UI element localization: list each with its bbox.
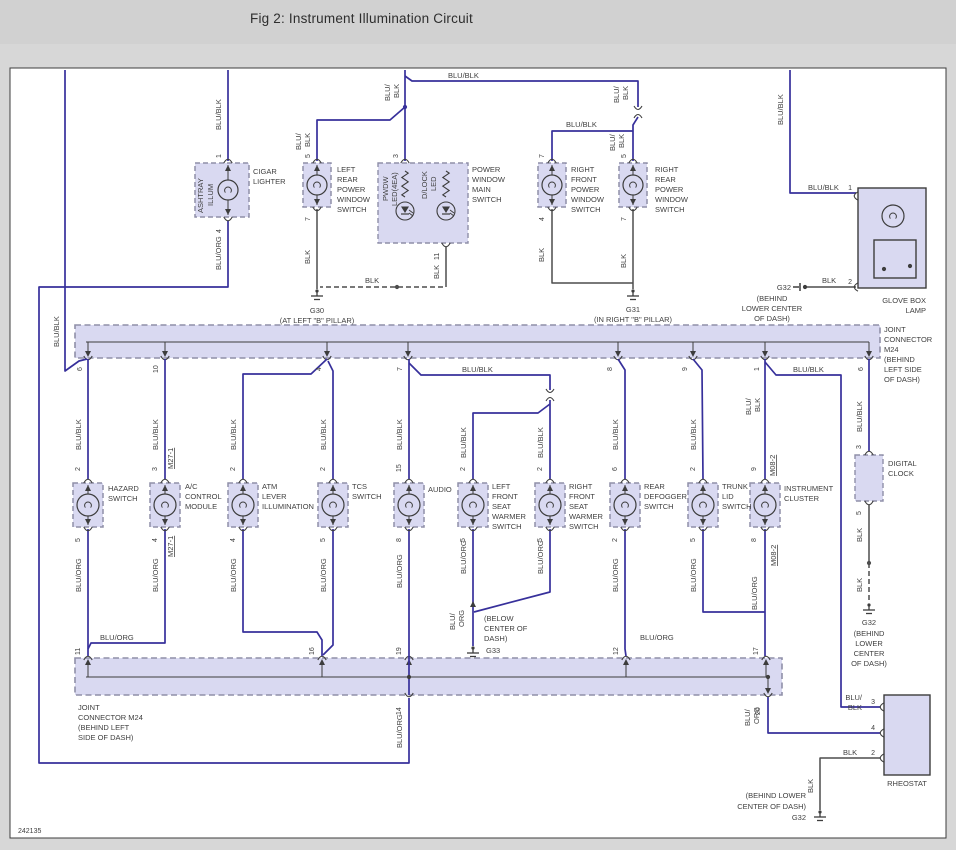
junction-dot bbox=[403, 105, 407, 109]
label: 2 bbox=[537, 467, 544, 471]
junction-dot bbox=[407, 675, 411, 679]
label: BLK bbox=[855, 578, 864, 592]
label: BLU/ORG bbox=[151, 558, 160, 592]
label: BLU/ORG bbox=[536, 540, 545, 574]
label: BLU/ bbox=[448, 612, 457, 630]
label: BLU/BLK bbox=[566, 120, 597, 129]
label: 5 bbox=[856, 511, 863, 515]
label: 1 bbox=[216, 154, 223, 158]
label: 2 bbox=[848, 279, 852, 286]
label: HAZARDSWITCH bbox=[108, 484, 139, 503]
label: 4 bbox=[539, 217, 546, 221]
label: 8 bbox=[751, 538, 758, 542]
label: BLU/BLK bbox=[793, 365, 824, 374]
label: ILLUM bbox=[206, 184, 215, 206]
label: G32 bbox=[862, 618, 876, 627]
label: 2 bbox=[75, 467, 82, 471]
junction-dot bbox=[908, 264, 912, 268]
label: BLU/ bbox=[383, 83, 392, 101]
label: 5 bbox=[305, 154, 312, 158]
label: BLK bbox=[822, 276, 836, 285]
junction-dot bbox=[867, 561, 871, 565]
label: 2 bbox=[460, 467, 467, 471]
label: BLU/ORG bbox=[611, 558, 620, 592]
wiring-diagram: BLU/BLKBLU/BLK1CIGARLIGHTERASHTRAYILLUM4… bbox=[0, 0, 956, 850]
label: 4 bbox=[230, 538, 237, 542]
label: BLU/ bbox=[612, 85, 621, 103]
digital-clock bbox=[855, 455, 883, 501]
label: 17 bbox=[753, 647, 760, 655]
label: BLK bbox=[619, 254, 628, 268]
label: (AT LEFT "B" PILLAR) bbox=[280, 316, 355, 325]
label: BLK bbox=[855, 528, 864, 542]
label: AUDIO bbox=[428, 485, 452, 494]
label: BLK bbox=[537, 248, 546, 262]
label: 5 bbox=[621, 154, 628, 158]
label: 7 bbox=[397, 367, 404, 371]
label: BLU/BLK bbox=[229, 419, 238, 450]
label: BLU/ORG bbox=[214, 236, 223, 270]
label: BLK bbox=[843, 748, 857, 757]
label: 11 bbox=[434, 253, 441, 260]
label: 3 bbox=[871, 699, 875, 706]
label: BLU/BLK bbox=[459, 427, 468, 458]
label: BLU/ bbox=[608, 133, 617, 151]
label: BLU/BLK bbox=[151, 419, 160, 450]
label: BLU/BLK bbox=[845, 693, 863, 712]
label: ORG bbox=[457, 610, 466, 627]
label: 4 bbox=[216, 229, 223, 233]
label: G32 bbox=[777, 283, 791, 292]
label: BLK bbox=[392, 84, 401, 98]
label: 8 bbox=[396, 538, 403, 542]
label: BLU/ORG bbox=[459, 540, 468, 574]
label: 8 bbox=[607, 367, 614, 371]
label: M27-1 bbox=[166, 536, 175, 557]
label: (IN RIGHT "B" PILLAR) bbox=[594, 315, 673, 324]
label: 5 bbox=[690, 538, 697, 542]
label: BLU/ORG bbox=[74, 558, 83, 592]
label: BLU/ORG bbox=[689, 558, 698, 592]
label: 15 bbox=[396, 464, 403, 472]
label: DIGITALCLOCK bbox=[888, 459, 917, 478]
label: G33 bbox=[486, 646, 500, 655]
label: BLU/BLK bbox=[855, 401, 864, 432]
label: BLU/BLK bbox=[611, 419, 620, 450]
label: BLU/ORG bbox=[229, 558, 238, 592]
label: 7 bbox=[305, 217, 312, 221]
label: BLU/BLK bbox=[319, 419, 328, 450]
label: BLK bbox=[806, 779, 815, 793]
label: BLU/BLK bbox=[536, 427, 545, 458]
label: 7 bbox=[621, 217, 628, 221]
junction-dot bbox=[803, 285, 807, 289]
label: BLU/BLK bbox=[395, 419, 404, 450]
label: 2 bbox=[612, 538, 619, 542]
label: BLU/ORG bbox=[395, 554, 404, 588]
label: BLU/ORG bbox=[319, 558, 328, 592]
label: BLK bbox=[303, 133, 312, 147]
label: PWDW bbox=[381, 176, 390, 201]
label: 3 bbox=[393, 154, 400, 158]
label: BLU/BLK bbox=[214, 99, 223, 130]
label: BLU/BLK bbox=[448, 71, 479, 80]
label: BLK bbox=[365, 276, 379, 285]
label: BLU/BLK bbox=[776, 94, 785, 125]
label: 9 bbox=[682, 367, 689, 371]
label: BLK bbox=[753, 398, 762, 412]
label: BLU/BLK bbox=[52, 316, 61, 347]
label: BLK bbox=[621, 86, 630, 100]
label: BLU/BLK bbox=[74, 419, 83, 450]
rheostat bbox=[884, 695, 930, 775]
label: 6 bbox=[858, 367, 865, 371]
glove-box-switch-inner bbox=[874, 240, 916, 278]
label: BLU/ORG bbox=[395, 714, 404, 748]
label: G31 bbox=[626, 305, 640, 314]
label: 14 bbox=[396, 707, 403, 715]
label: BLU/ORG bbox=[100, 633, 134, 642]
label: 4 bbox=[316, 367, 323, 371]
label: 7 bbox=[539, 154, 546, 158]
label: 3 bbox=[856, 445, 863, 449]
label: BLU/ORG bbox=[750, 576, 759, 610]
label: 1 bbox=[848, 185, 852, 192]
label: 12 bbox=[613, 647, 620, 655]
drawing-number: 242135 bbox=[18, 828, 41, 835]
label: 4 bbox=[871, 725, 875, 732]
label: 2 bbox=[690, 467, 697, 471]
label: BLU/ bbox=[294, 132, 303, 150]
label: 10 bbox=[153, 365, 160, 373]
label: RHEOSTAT bbox=[887, 779, 927, 788]
label: M27-1 bbox=[166, 448, 175, 469]
label: LED(4EA) bbox=[390, 172, 399, 206]
label: M08-2 bbox=[769, 545, 778, 566]
junction-dot bbox=[766, 675, 770, 679]
label: (BEHINDLOWERCENTEROF DASH) bbox=[851, 629, 887, 668]
label: BLU/ bbox=[743, 708, 752, 726]
label: ORG bbox=[752, 707, 761, 724]
junction-dot bbox=[882, 267, 886, 271]
label: G30 bbox=[310, 306, 324, 315]
junction-dot bbox=[395, 285, 399, 289]
return-defogger bbox=[625, 529, 626, 656]
label: 19 bbox=[396, 647, 403, 655]
label: 1 bbox=[754, 367, 761, 371]
label: 6 bbox=[77, 367, 84, 371]
label: G32 bbox=[792, 813, 806, 822]
label: D/LOCK bbox=[420, 171, 429, 199]
label: M08-2 bbox=[768, 455, 777, 476]
label: BLK bbox=[432, 265, 441, 279]
label: ASHTRAY bbox=[196, 178, 205, 213]
label: 2 bbox=[871, 750, 875, 757]
label: LED bbox=[429, 176, 438, 191]
label: 5 bbox=[75, 538, 82, 542]
label: 4 bbox=[152, 538, 159, 542]
label: BLK bbox=[617, 134, 626, 148]
label: 3 bbox=[152, 467, 159, 471]
label: BLU/ bbox=[744, 397, 753, 415]
label: BLU/ORG bbox=[640, 633, 674, 642]
label: 2 bbox=[230, 467, 237, 471]
label: BLU/BLK bbox=[462, 365, 493, 374]
label: BLU/BLK bbox=[808, 183, 839, 192]
label: 9 bbox=[751, 467, 758, 471]
label: 16 bbox=[309, 647, 316, 655]
label: BLK bbox=[303, 250, 312, 264]
label: 11 bbox=[75, 648, 82, 655]
label: 2 bbox=[320, 467, 327, 471]
label: 6 bbox=[612, 467, 619, 471]
label: 5 bbox=[320, 538, 327, 542]
label: BLU/BLK bbox=[689, 419, 698, 450]
